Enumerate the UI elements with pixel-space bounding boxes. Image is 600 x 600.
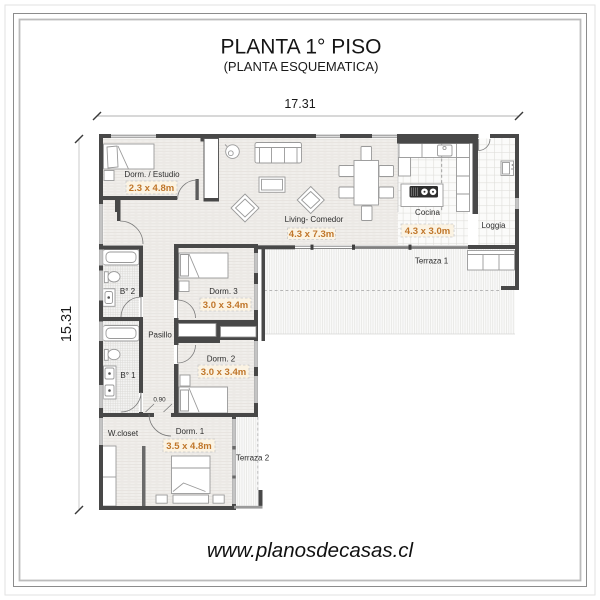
svg-text:3.5 x 4.8m: 3.5 x 4.8m	[166, 441, 211, 452]
svg-text:PLANTA 1° PISO: PLANTA 1° PISO	[221, 36, 382, 59]
svg-text:Terraza 1: Terraza 1	[415, 257, 449, 266]
svg-text:4.3 x 7.3m: 4.3 x 7.3m	[289, 229, 334, 240]
svg-text:Dorm. 3: Dorm. 3	[209, 287, 238, 296]
svg-text:(PLANTA ESQUEMATICA): (PLANTA ESQUEMATICA)	[224, 59, 379, 74]
svg-text:B° 2: B° 2	[120, 287, 136, 296]
svg-text:4.3 x 3.0m: 4.3 x 3.0m	[405, 226, 450, 237]
svg-text:3.0 x 3.4m: 3.0 x 3.4m	[203, 300, 248, 311]
svg-text:www.planosdecasas.cl: www.planosdecasas.cl	[207, 539, 415, 562]
svg-text:B° 1: B° 1	[120, 371, 136, 380]
svg-text:Dorm. 2: Dorm. 2	[207, 355, 236, 364]
svg-text:Dorm. / Estudio: Dorm. / Estudio	[124, 170, 180, 179]
svg-text:2.3 x 4.8m: 2.3 x 4.8m	[129, 183, 174, 194]
svg-text:Dorm. 1: Dorm. 1	[176, 427, 205, 436]
svg-text:3.0 x 3.4m: 3.0 x 3.4m	[201, 367, 246, 378]
svg-text:Loggia: Loggia	[481, 221, 506, 230]
svg-text:W.closet: W.closet	[108, 429, 139, 438]
svg-text:Cocina: Cocina	[415, 208, 440, 217]
svg-text:Terraza 2: Terraza 2	[236, 454, 270, 463]
svg-text:Pasillo: Pasillo	[148, 331, 172, 340]
svg-text:Living- Comedor: Living- Comedor	[285, 215, 344, 224]
svg-text:15.31: 15.31	[59, 306, 75, 342]
svg-text:17.31: 17.31	[284, 97, 315, 111]
svg-text:0.90: 0.90	[153, 397, 166, 404]
